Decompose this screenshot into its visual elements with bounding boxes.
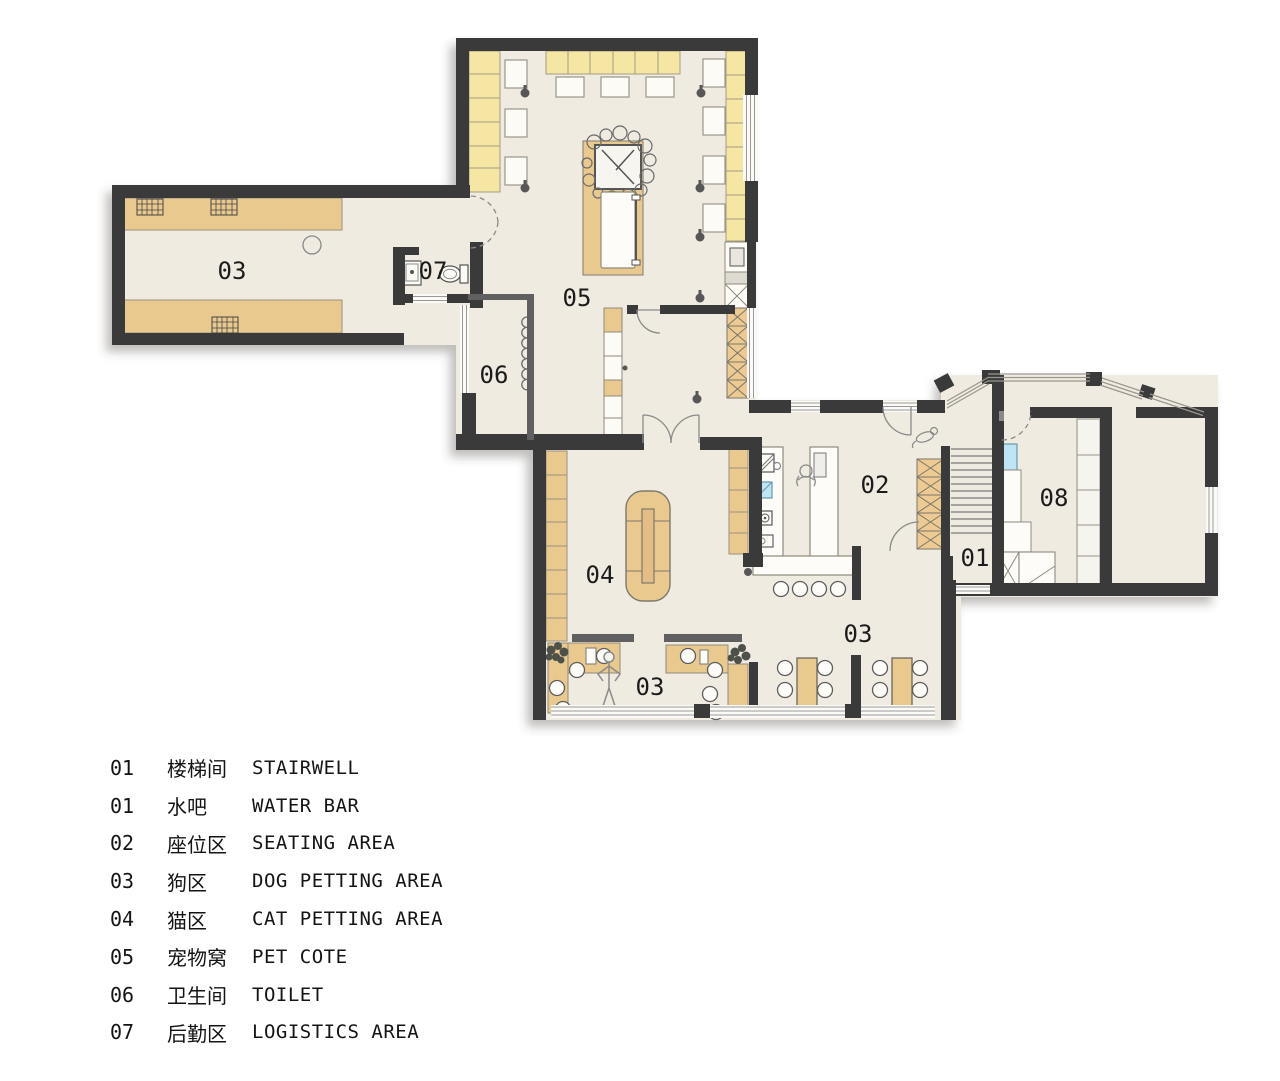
- legend-row: 02 座位区 SEATING AREA: [110, 825, 443, 863]
- legend-code: 06: [110, 983, 167, 1007]
- floor-plan: 03 07 05 06 04 02 01 08 03 03: [0, 0, 1280, 745]
- legend-row: 05 宠物窝 PET COTE: [110, 938, 443, 976]
- legend-zh: 座位区: [167, 829, 252, 858]
- floor-slabs: [112, 38, 1218, 720]
- legend-zh: 后勤区: [167, 1018, 252, 1047]
- legend-en: LOGISTICS AREA: [252, 1021, 419, 1043]
- room-label-03-south: 03: [636, 673, 665, 701]
- legend-en: DOG PETTING AREA: [252, 870, 443, 892]
- legend-code: 05: [110, 945, 167, 969]
- legend-code: 03: [110, 869, 167, 893]
- legend-zh: 楼梯间: [167, 753, 252, 782]
- shelf-strip: [604, 308, 622, 438]
- legend: 01 楼梯间 STAIRWELL 01 水吧 WATER BAR 02 座位区 …: [110, 749, 443, 1051]
- room-label-04: 04: [586, 561, 615, 589]
- room-label-08: 08: [1040, 484, 1069, 512]
- room-label-05: 05: [563, 284, 592, 312]
- room-label-03-west: 03: [218, 257, 247, 285]
- legend-en: CAT PETTING AREA: [252, 908, 443, 930]
- legend-zh: 宠物窝: [167, 942, 252, 971]
- legend-code: 01: [110, 794, 167, 818]
- legend-en: PET COTE: [252, 946, 348, 968]
- room-label-06: 06: [480, 361, 509, 389]
- legend-en: SEATING AREA: [252, 832, 395, 854]
- room-label-02: 02: [861, 471, 890, 499]
- legend-row: 01 水吧 WATER BAR: [110, 787, 443, 825]
- legend-en: STAIRWELL: [252, 757, 359, 779]
- coffee-machine-icon: [814, 453, 826, 477]
- legend-zh: 水吧: [167, 791, 252, 820]
- legend-en: TOILET: [252, 984, 324, 1006]
- legend-row: 03 狗区 DOG PETTING AREA: [110, 862, 443, 900]
- legend-code: 04: [110, 907, 167, 931]
- legend-row: 04 猫区 CAT PETTING AREA: [110, 900, 443, 938]
- legend-row: 01 楼梯间 STAIRWELL: [110, 749, 443, 787]
- legend-zh: 卫生间: [167, 980, 252, 1009]
- legend-code: 07: [110, 1020, 167, 1044]
- room-label-03-east: 03: [844, 620, 873, 648]
- legend-code: 02: [110, 831, 167, 855]
- room-label-07: 07: [419, 257, 448, 285]
- legend-en: WATER BAR: [252, 795, 359, 817]
- legend-row: 06 卫生间 TOILET: [110, 976, 443, 1014]
- legend-row: 07 后勤区 LOGISTICS AREA: [110, 1014, 443, 1052]
- room-label-01: 01: [961, 544, 990, 572]
- legend-code: 01: [110, 756, 167, 780]
- legend-zh: 狗区: [167, 867, 252, 896]
- legend-zh: 猫区: [167, 905, 252, 934]
